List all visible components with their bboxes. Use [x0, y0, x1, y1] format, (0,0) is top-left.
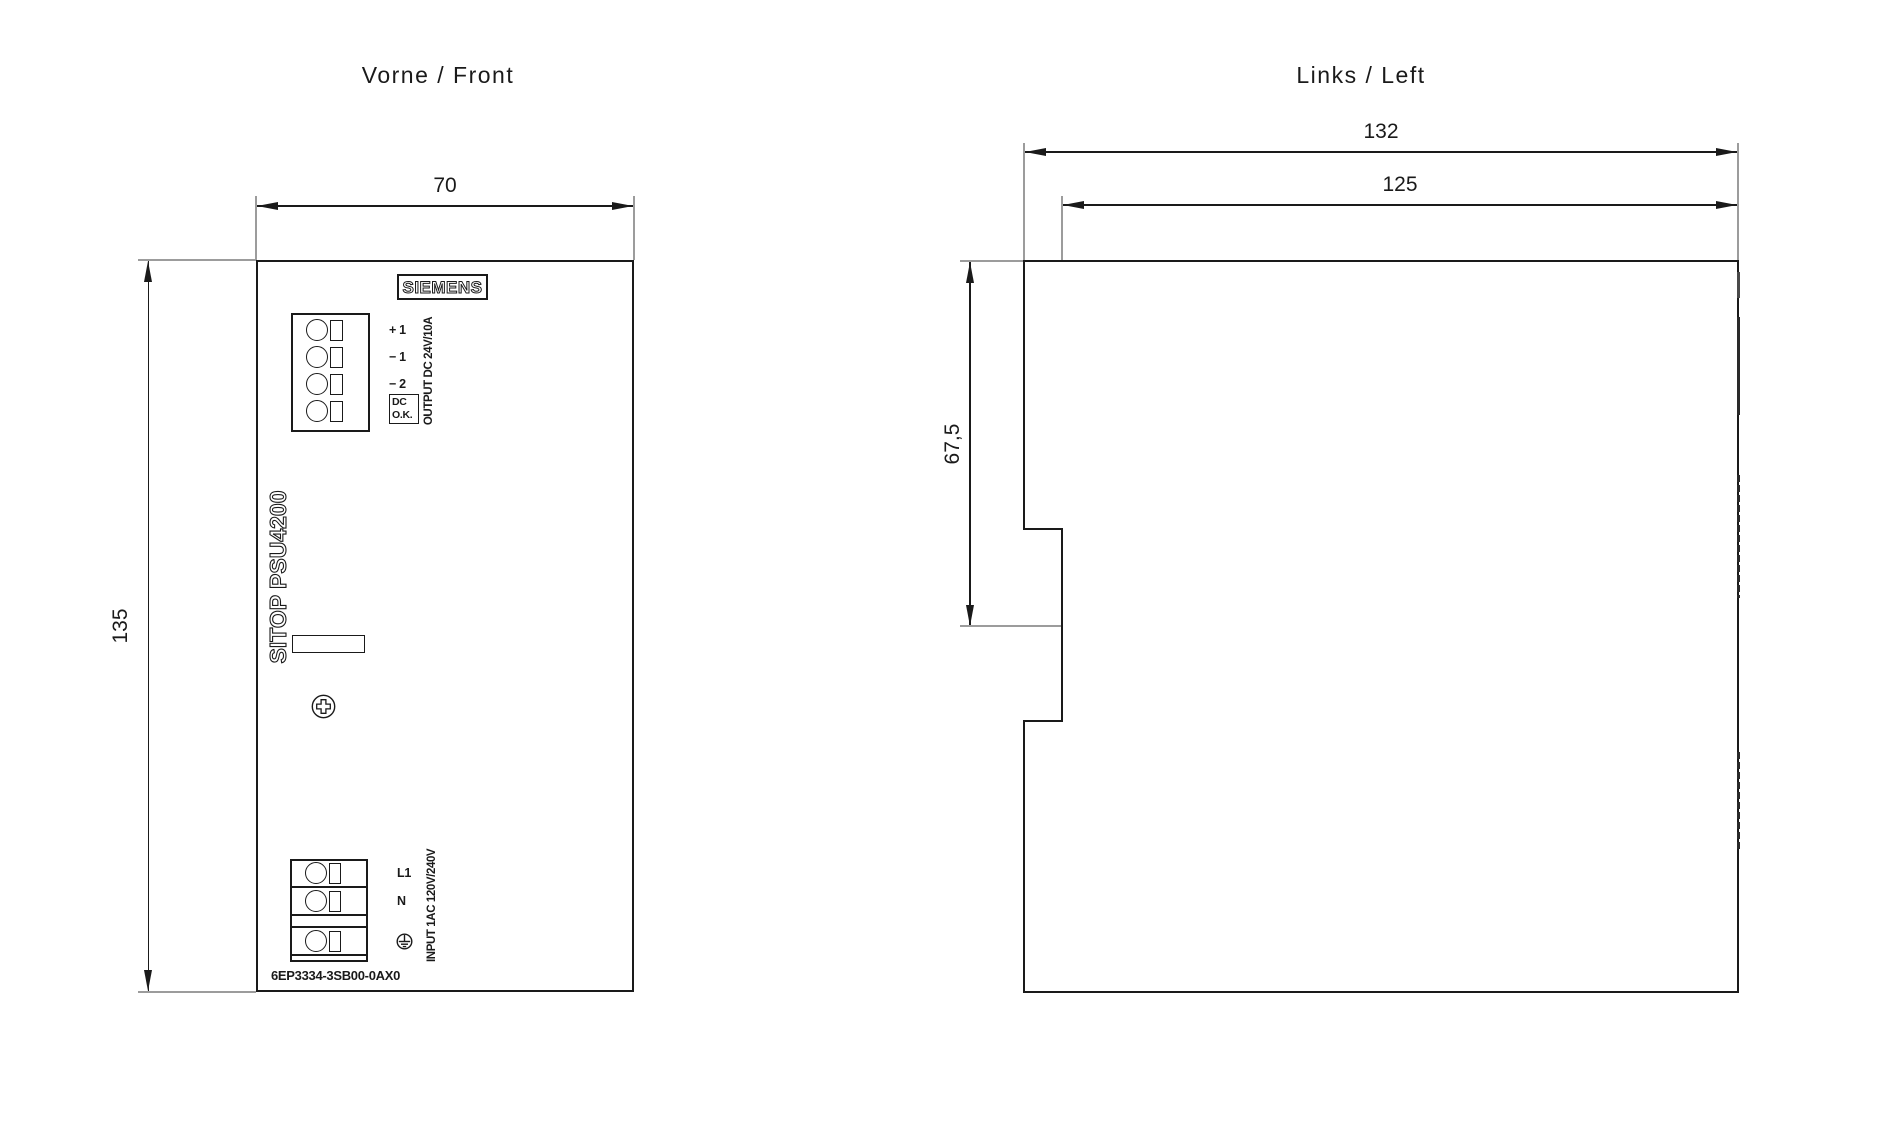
dim-67-5-arrow-down-icon [966, 605, 974, 626]
product-name-rotated: SITOP PSU4200 [264, 490, 292, 664]
side-front-edge-detail [1737, 272, 1740, 298]
dim-70-label: 70 [405, 174, 485, 198]
dim-right-extension [1737, 143, 1739, 261]
dim-132-extension-left [1023, 143, 1025, 261]
screw-icon [310, 693, 337, 720]
dim-135-extension-bottom [138, 991, 256, 993]
earth-ground-icon [396, 933, 413, 950]
dim-67-5-arrow-up-icon [966, 262, 974, 283]
output-rating-label: OUTPUT DC 24V/10A [422, 316, 436, 426]
output-terminal-label-minus2: − 2 [389, 376, 406, 392]
dim-125-arrow-left-icon [1063, 201, 1084, 209]
side-front-edge-vent-detail [1737, 752, 1740, 852]
output-terminal-label-plus1: + 1 [389, 322, 406, 338]
order-number: 6EP3334-3SB00-0AX0 [271, 968, 400, 984]
dim-135-extension-top [138, 259, 256, 261]
selector-window-rect [292, 635, 365, 653]
svg-text:SITOP PSU4200: SITOP PSU4200 [265, 490, 291, 663]
dim-70-arrow-right-icon [612, 202, 633, 210]
dim-132-arrow-left-icon [1025, 148, 1046, 156]
dc-ok-indicator: DC O.K. [389, 394, 419, 424]
side-view-title: Links / Left [1221, 62, 1501, 89]
dim-135-label: 135 [109, 586, 133, 666]
dc-ok-line2: O.K. [392, 409, 418, 422]
dim-125-arrow-right-icon [1716, 201, 1737, 209]
product-name-text: SITOP PSU4200 [264, 490, 292, 664]
output-terminal-screw-circle [306, 400, 328, 422]
side-front-edge-detail [1737, 317, 1740, 415]
dc-ok-line1: DC [392, 396, 418, 409]
dim-70-extension-right [633, 196, 635, 260]
dim-132-line [1024, 151, 1738, 153]
dim-125-label: 125 [1360, 173, 1440, 197]
output-terminal-clamp-rect [330, 401, 343, 422]
output-terminal-screw-circle [306, 373, 328, 395]
input-block-divider [292, 914, 367, 916]
dim-67-5-line [969, 261, 971, 626]
input-block-divider [292, 886, 367, 888]
output-terminal-screw-circle [306, 319, 328, 341]
front-view-title: Vorne / Front [298, 62, 578, 89]
dim-67-5-label: 67,5 [941, 404, 965, 484]
side-front-edge-vent-detail [1737, 475, 1740, 598]
input-terminal-screw-circle [305, 862, 327, 884]
output-terminal-clamp-rect [330, 320, 343, 341]
output-terminal-screw-circle [306, 346, 328, 368]
technical-drawing-canvas: Vorne / Front 70 135 SIEMENS + 1 − 1 − 2… [0, 0, 1899, 1140]
dim-125-line [1062, 204, 1738, 206]
input-terminal-label-n: N [397, 893, 406, 909]
dim-135-line [148, 260, 150, 992]
dim-132-arrow-right-icon [1716, 148, 1737, 156]
dim-132-label: 132 [1341, 120, 1421, 144]
output-terminal-label-minus1: − 1 [389, 349, 406, 365]
input-terminal-label-l1: L1 [397, 865, 411, 881]
dim-70-line [256, 205, 634, 207]
input-block-divider [292, 926, 367, 928]
output-terminal-clamp-rect [330, 347, 343, 368]
input-rating-label: INPUT 1AC 120V/240V [425, 852, 439, 962]
input-terminal-clamp-rect [329, 931, 341, 952]
dim-135-arrow-up-icon [144, 261, 152, 282]
input-terminal-screw-circle [305, 930, 327, 952]
input-block-divider [292, 954, 367, 956]
dim-135-arrow-down-icon [144, 970, 152, 991]
svg-text:SIEMENS: SIEMENS [402, 278, 482, 297]
input-terminal-clamp-rect [329, 863, 341, 884]
dim-70-extension-left [255, 196, 257, 260]
dim-70-arrow-left-icon [257, 202, 278, 210]
input-terminal-screw-circle [305, 890, 327, 912]
output-terminal-clamp-rect [330, 374, 343, 395]
side-profile-outline [1014, 251, 1748, 1001]
input-terminal-clamp-rect [329, 891, 341, 912]
siemens-logo: SIEMENS [397, 274, 488, 300]
siemens-logo-text: SIEMENS [400, 276, 485, 298]
